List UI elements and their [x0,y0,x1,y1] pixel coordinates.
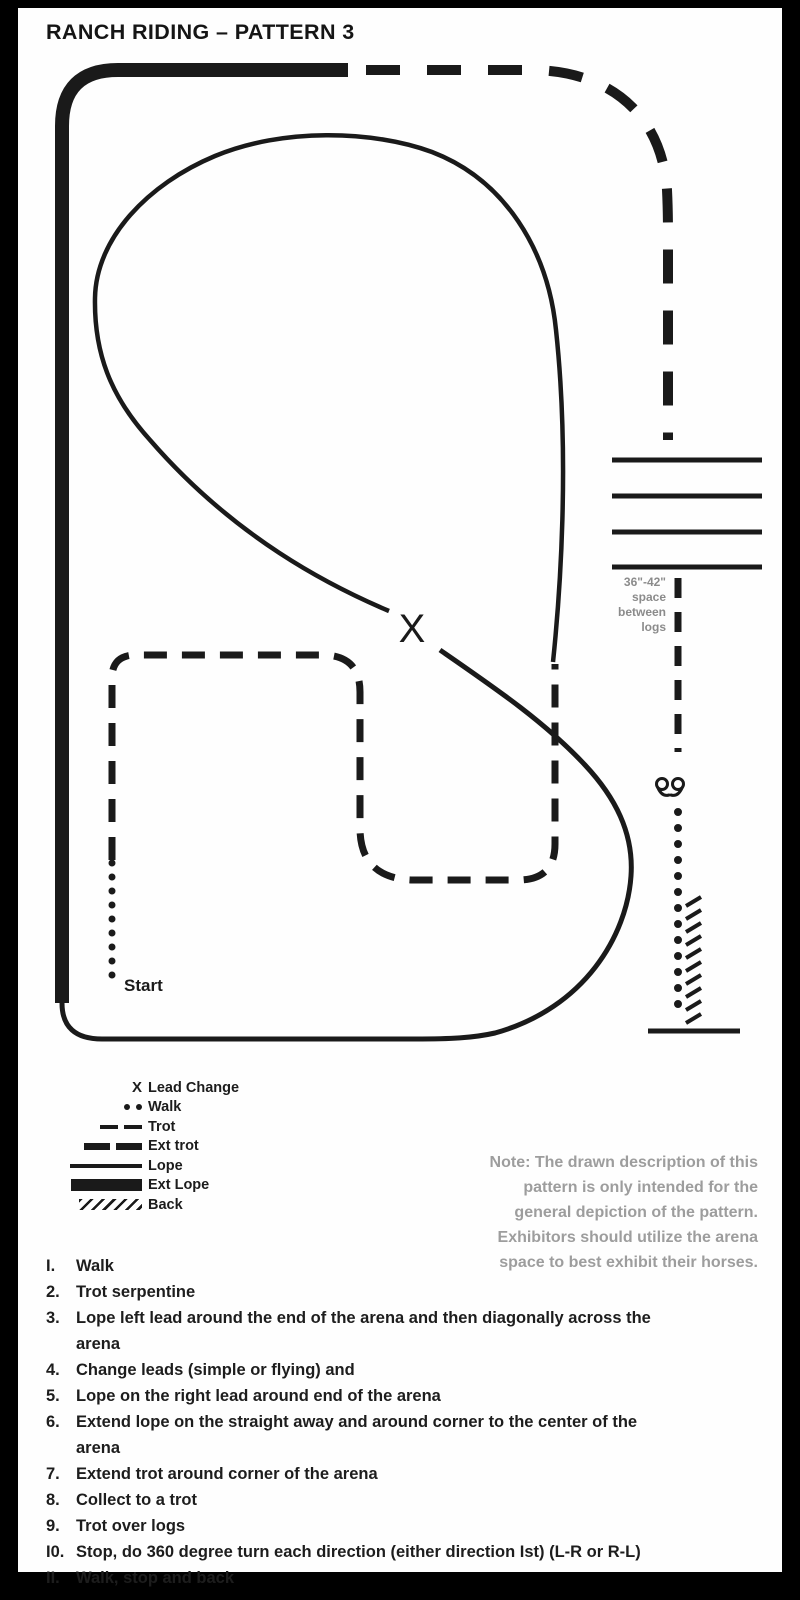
ext-lope-path [62,70,348,1003]
note-line: pattern is only intended for the [428,1175,758,1200]
legend-item-trot: Trot [66,1117,239,1137]
ext-trot-path [366,70,668,440]
serpentine-path [112,655,555,880]
legend-item-back: Back [66,1195,239,1215]
note-line: Exhibitors should utilize the arena [428,1225,758,1250]
note-line: Note: The drawn description of this [428,1150,758,1175]
legend-item-ext-lope: Ext Lope [66,1176,239,1196]
ext-trot-dash-icon [66,1143,142,1150]
instruction-item: 5. Lope on the right lead around end of … [46,1383,768,1409]
legend-item-lead-change: X Lead Change [66,1078,239,1098]
instruction-item: 6. Extend lope on the straight away and … [46,1409,768,1461]
back-hatches [686,897,701,1023]
lope-line-icon [66,1164,142,1168]
instruction-item: 9. Trot over logs [46,1513,768,1539]
instruction-item: II. Walk, stop and back [46,1565,768,1591]
logs-note-line-2: space [632,590,666,604]
logs-note-line-1: 36"-42" [624,575,666,589]
legend: X Lead Change Walk Trot Ext trot Lope Ex… [66,1078,239,1215]
lope-oval-path [95,135,563,662]
instruction-item: 3. Lope left lead around the end of the … [46,1305,768,1357]
lead-change-marker: X [399,607,426,651]
start-label: Start [124,976,163,995]
x-marker-icon: X [132,1080,142,1095]
instruction-item: I0. Stop, do 360 degree turn each direct… [46,1539,768,1565]
note-line: general depiction of the pattern. [428,1200,758,1225]
instruction-item: I. Walk [46,1253,768,1279]
turn-curls-icon [657,779,684,796]
instructions-list: I. Walk 2. Trot serpentine 3. Lope left … [46,1253,768,1591]
ext-lope-bar-icon [66,1179,142,1191]
walk-dots-icon [66,1104,142,1110]
riding-pattern-diagram: 36"-42" space between logs Start X [0,0,800,1050]
logs-note-line-3: between [618,605,666,619]
pattern-sheet: RANCH RIDING – PATTERN 3 36"-42" space b… [0,0,800,1600]
back-hatch-icon [66,1199,142,1210]
logs-note-line-4: logs [641,620,666,634]
instruction-item: 2. Trot serpentine [46,1279,768,1305]
legend-item-lope: Lope [66,1156,239,1176]
instruction-item: 7. Extend trot around corner of the aren… [46,1461,768,1487]
instruction-item: 8. Collect to a trot [46,1487,768,1513]
legend-item-walk: Walk [66,1098,239,1118]
legend-item-ext-trot: Ext trot [66,1137,239,1157]
page-title: RANCH RIDING – PATTERN 3 [46,20,355,45]
instruction-item: 4. Change leads (simple or flying) and [46,1357,768,1383]
trot-dash-icon [66,1125,142,1129]
